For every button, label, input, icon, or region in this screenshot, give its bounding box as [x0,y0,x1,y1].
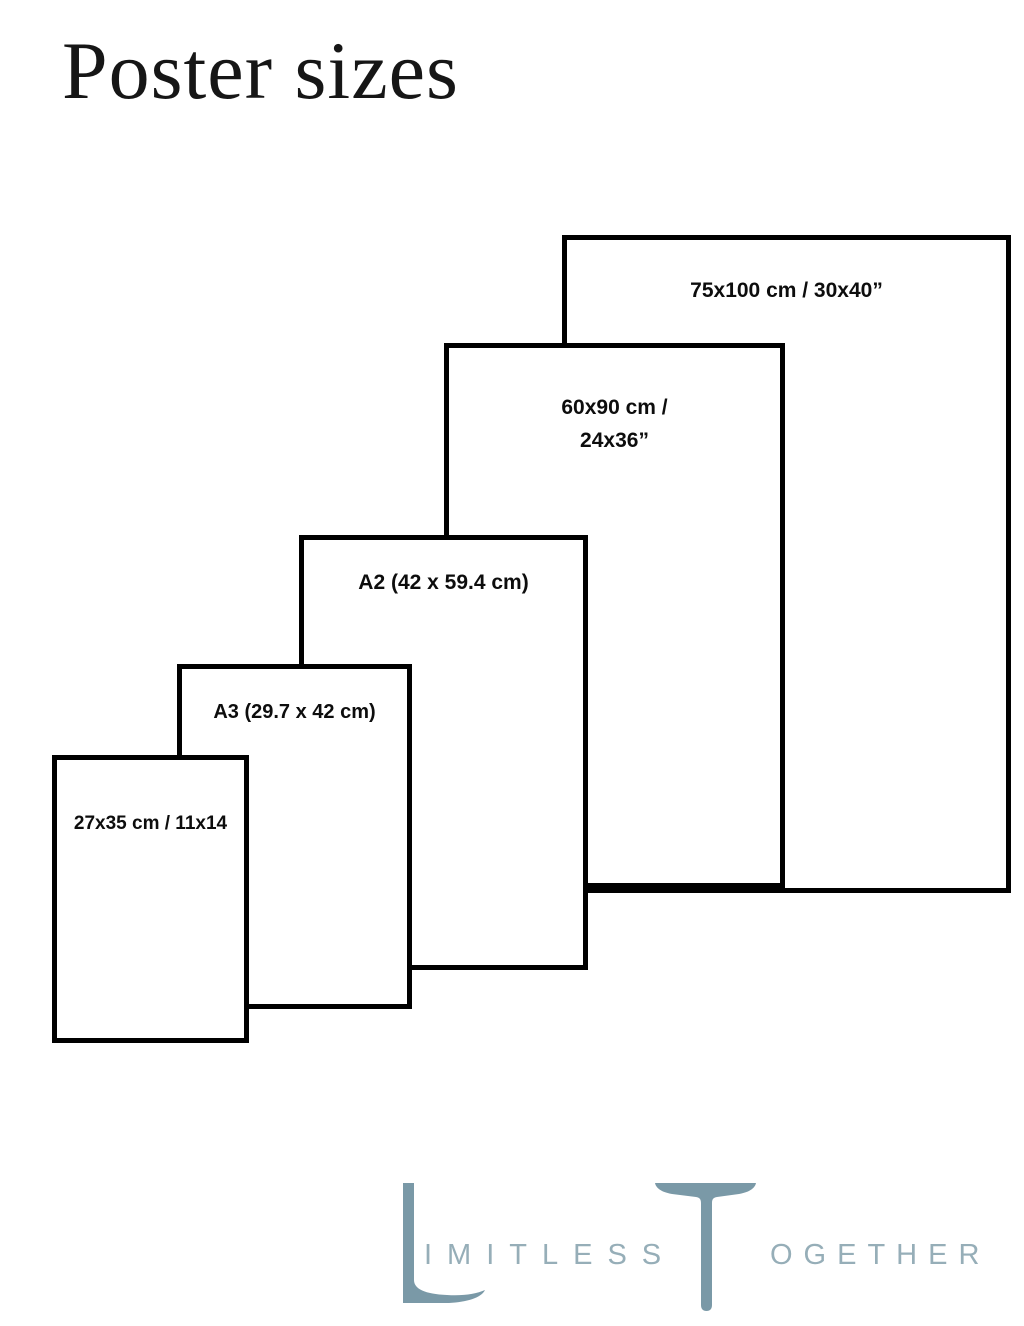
poster-label-27x35: 27x35 cm / 11x14 [57,760,244,838]
logo-word-imitless: IMITLESS [424,1241,676,1270]
logo-initial-t-icon [655,1183,756,1311]
poster-rect-27x35: 27x35 cm / 11x14 [52,755,249,1043]
poster-label-60x90: 60x90 cm / 24x36” [449,348,780,457]
poster-label-60x90-line1: 60x90 cm / [561,396,667,419]
poster-sizes-infographic: Poster sizes 75x100 cm / 30x40” 60x90 cm… [0,0,1024,1326]
poster-label-75x100: 75x100 cm / 30x40” [567,240,1006,305]
logo-word-ogether: OGETHER [770,1241,990,1270]
page-title: Poster sizes [62,30,459,112]
brand-logo: IMITLESS OGETHER [395,1183,987,1315]
poster-label-a2: A2 (42 x 59.4 cm) [304,540,583,597]
poster-label-a3: A3 (29.7 x 42 cm) [182,669,407,726]
poster-label-60x90-line2: 24x36” [580,429,649,452]
